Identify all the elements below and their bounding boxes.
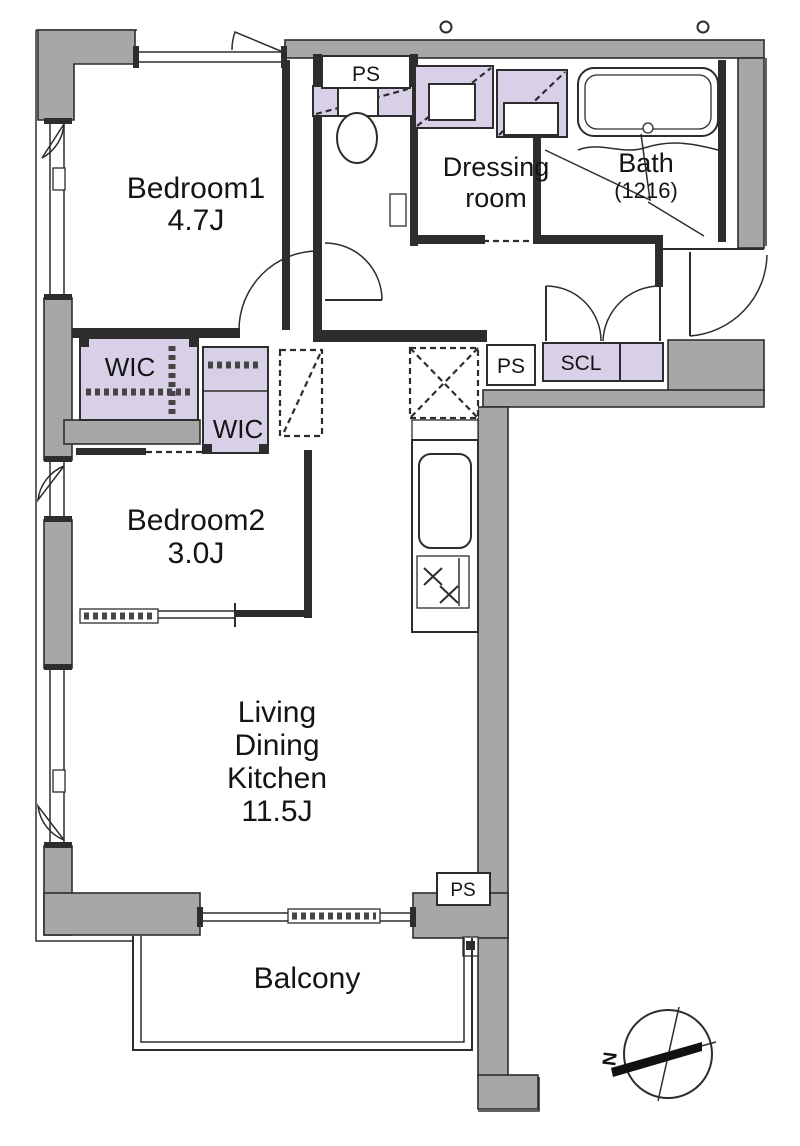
window-cap: [281, 46, 287, 68]
wall-left-mid2: [44, 520, 72, 668]
bedroom2-size: 3.0J: [168, 537, 225, 570]
vent-icon: [441, 22, 452, 33]
wall-column-foot: [478, 1075, 538, 1109]
ldk-label-line3: Kitchen: [227, 762, 327, 795]
bath-east-wall: [718, 60, 726, 242]
dressing-south-wall: [410, 235, 485, 244]
partition-track: [80, 609, 158, 623]
balcony-label: Balcony: [254, 962, 361, 995]
washing-machine: [429, 84, 475, 120]
wic2-pivot-right: [259, 444, 268, 453]
bedroom1-size: 4.7J: [168, 204, 225, 237]
window-cap: [44, 664, 72, 670]
ps-top-label: PS: [352, 63, 380, 86]
balcony-drain: [466, 941, 475, 950]
ldk-label-line1: Living: [238, 696, 316, 729]
wic1-label: WIC: [105, 352, 156, 382]
window-cap: [410, 907, 416, 927]
bath-south-wall: [540, 235, 662, 244]
window-cap: [44, 294, 72, 300]
partition-wall: [235, 610, 311, 617]
bathtub-inner: [585, 75, 711, 129]
wall-entry-block: [668, 340, 764, 392]
paper-background: [0, 0, 800, 1146]
toilet-paper-holder: [390, 194, 406, 226]
ldk-size: 11.5J: [241, 795, 312, 828]
bath-label: Bath: [618, 148, 674, 178]
wall-right-upper: [738, 58, 764, 248]
wic1-pivot-left: [80, 338, 89, 347]
toilet-bowl: [337, 113, 377, 163]
toilet-tank: [338, 88, 378, 116]
wall-wic-band: [64, 420, 200, 444]
bath-size: (1216): [614, 178, 678, 203]
wic2-pivot-left: [203, 444, 212, 453]
wall-bottom-left-block: [44, 893, 200, 935]
kitchen-hood: [412, 420, 478, 440]
bath-hall-wall: [655, 235, 663, 287]
compass-north-label: N: [597, 1051, 620, 1067]
window-cap: [44, 842, 72, 848]
bedroom2-label: Bedroom2: [127, 504, 265, 537]
floor-plan-drawing: N Bedroom1 4.7J Dressing room Bath (1216…: [0, 0, 800, 1146]
kitchen-sink: [419, 454, 471, 548]
window-cap: [133, 46, 139, 68]
scl-label: SCL: [561, 352, 602, 375]
vanity-basin: [504, 103, 558, 135]
floor-plan-page: N Bedroom1 4.7J Dressing room Bath (1216…: [0, 0, 800, 1146]
bathtub-drain: [643, 123, 653, 133]
bedroom2-north-wall: [76, 448, 146, 455]
bedroom1-south-wall: [72, 328, 240, 338]
dressing-room-label-line2: room: [465, 183, 527, 213]
wall-right-column: [478, 407, 508, 1077]
bath-west-wall: [533, 130, 541, 244]
hall-south-wall: [322, 330, 487, 342]
window-cap: [44, 456, 72, 462]
window-handle: [53, 770, 65, 792]
wall-hall-band: [483, 390, 764, 407]
bedroom1-east-wall: [282, 60, 290, 330]
window-cap: [44, 118, 72, 124]
ldk-label-line2: Dining: [234, 729, 319, 762]
window-handle: [53, 168, 65, 190]
wic1-pivot-right: [189, 338, 198, 347]
window-cap: [44, 516, 72, 522]
ps-bottom-label: PS: [450, 880, 475, 901]
bedroom1-label: Bedroom1: [127, 172, 265, 205]
dressing-room-label-line1: Dressing: [443, 152, 550, 182]
vent-icon: [698, 22, 709, 33]
window-cap: [197, 907, 203, 927]
wic2-label: WIC: [213, 414, 264, 444]
bedroom2-east-wall: [304, 450, 312, 618]
ps-middle-label: PS: [497, 355, 525, 378]
